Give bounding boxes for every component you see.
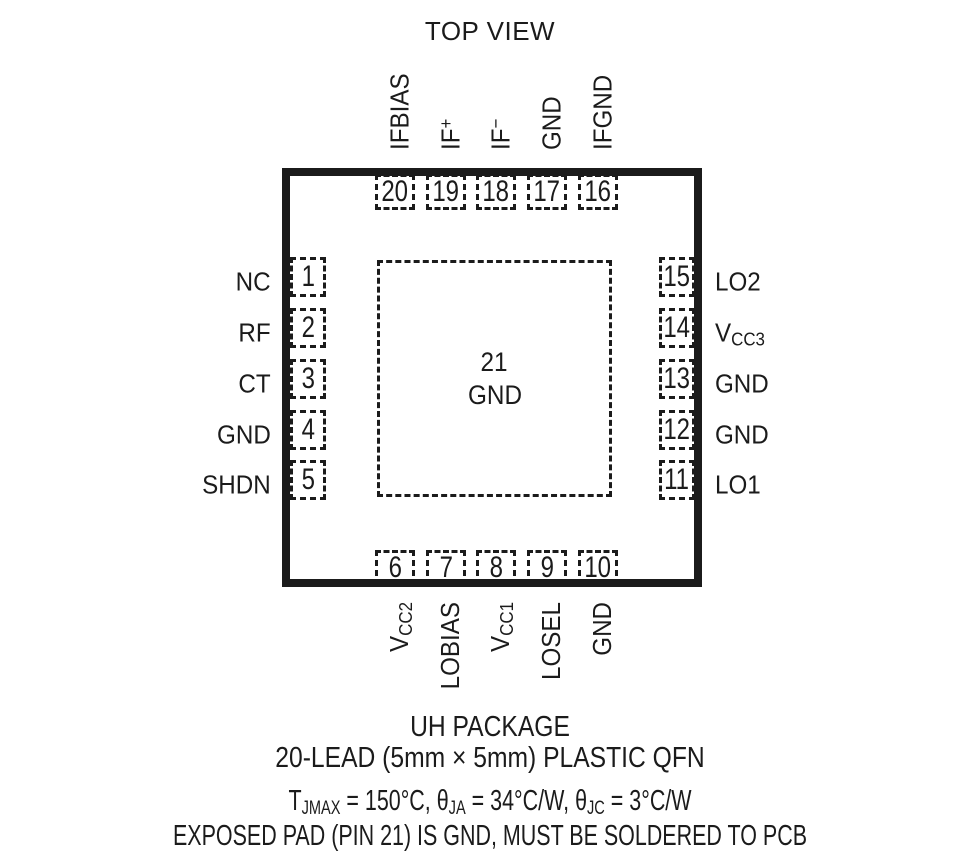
pin-14-box: 14 bbox=[659, 308, 695, 348]
pin-20-number: 20 bbox=[382, 175, 409, 209]
pin-9-box: 9 bbox=[527, 550, 567, 586]
pin-7-label: LOBIAS bbox=[433, 602, 470, 689]
pinout-diagram: TOP VIEW 21 GND 20 19 18 17 16 IFBIAS IF… bbox=[0, 0, 980, 865]
pin-1-number: 1 bbox=[301, 260, 314, 294]
pin-16-number: 16 bbox=[585, 175, 612, 209]
pin-3-number: 3 bbox=[301, 362, 314, 396]
pin-13-number: 13 bbox=[664, 362, 691, 396]
pin-7-number: 7 bbox=[439, 551, 452, 585]
exposed-pad: 21 GND bbox=[377, 260, 612, 497]
pin-8-label: VCC1 bbox=[483, 602, 520, 652]
pin-2-label: RF bbox=[239, 313, 271, 354]
pin-7-box: 7 bbox=[426, 550, 466, 586]
pin-1-label: NC bbox=[236, 262, 271, 303]
pin-8-number: 8 bbox=[489, 551, 502, 585]
pin-10-number: 10 bbox=[585, 551, 612, 585]
pin-11-label: LO1 bbox=[715, 465, 761, 506]
pin-19-number: 19 bbox=[433, 175, 460, 209]
pin-13-label: GND bbox=[715, 364, 769, 405]
pin-9-number: 9 bbox=[540, 551, 553, 585]
pin-18-label: IF− bbox=[483, 119, 520, 150]
pin-12-box: 12 bbox=[659, 410, 695, 450]
pin-5-label: SHDN bbox=[202, 465, 271, 506]
pin-8-box: 8 bbox=[476, 550, 516, 586]
pin-3-label: CT bbox=[239, 364, 271, 405]
package-type-note: 20-LEAD (5mm × 5mm) PLASTIC QFN bbox=[74, 742, 907, 774]
pin-5-number: 5 bbox=[301, 463, 314, 497]
pin-6-label: VCC2 bbox=[382, 602, 419, 652]
pin-15-label: LO2 bbox=[715, 262, 761, 303]
pin-5-box: 5 bbox=[290, 460, 326, 500]
thermal-note: TJMAX = 150°C, θJA = 34°C/W, θJC = 3°C/W bbox=[127, 785, 852, 824]
pin-4-label: GND bbox=[217, 415, 271, 456]
exposed-pad-label: GND bbox=[468, 379, 522, 412]
pin-16-box: 16 bbox=[578, 174, 618, 210]
pin-9-label: LOSEL bbox=[534, 602, 571, 680]
top-view-title: TOP VIEW bbox=[0, 16, 980, 47]
pin-12-number: 12 bbox=[664, 413, 691, 447]
pin-17-label: GND bbox=[534, 96, 571, 150]
pin-14-number: 14 bbox=[664, 311, 691, 345]
pin-6-number: 6 bbox=[388, 551, 401, 585]
pin-10-label: GND bbox=[585, 602, 622, 656]
pin-12-label: GND bbox=[715, 415, 769, 456]
pin-19-box: 19 bbox=[426, 174, 466, 210]
pin-13-box: 13 bbox=[659, 359, 695, 399]
pin-14-label: VCC3 bbox=[715, 313, 765, 354]
pin-6-box: 6 bbox=[375, 550, 415, 586]
pin-20-label: IFBIAS bbox=[382, 73, 419, 150]
exposed-pad-number: 21 bbox=[481, 346, 508, 379]
pin-18-box: 18 bbox=[476, 174, 516, 210]
pin-15-number: 15 bbox=[664, 260, 691, 294]
pin-4-box: 4 bbox=[290, 410, 326, 450]
pin-11-number: 11 bbox=[665, 463, 690, 497]
pin-2-number: 2 bbox=[301, 311, 314, 345]
pin-17-box: 17 bbox=[527, 174, 567, 210]
package-name-note: UH PACKAGE bbox=[74, 711, 907, 743]
pin-11-box: 11 bbox=[659, 460, 695, 500]
pin-4-number: 4 bbox=[301, 413, 314, 447]
pin-20-box: 20 bbox=[375, 174, 415, 210]
pin-19-label: IF+ bbox=[433, 119, 470, 150]
pin-17-number: 17 bbox=[534, 175, 561, 209]
pin-15-box: 15 bbox=[659, 257, 695, 297]
pin-1-box: 1 bbox=[290, 257, 326, 297]
pin-18-number: 18 bbox=[483, 175, 510, 209]
pin-2-box: 2 bbox=[290, 308, 326, 348]
pin-10-box: 10 bbox=[578, 550, 618, 586]
exposed-pad-note: EXPOSED PAD (PIN 21) IS GND, MUST BE SOL… bbox=[127, 820, 852, 852]
pin-16-label: IFGND bbox=[585, 75, 622, 150]
pin-3-box: 3 bbox=[290, 359, 326, 399]
